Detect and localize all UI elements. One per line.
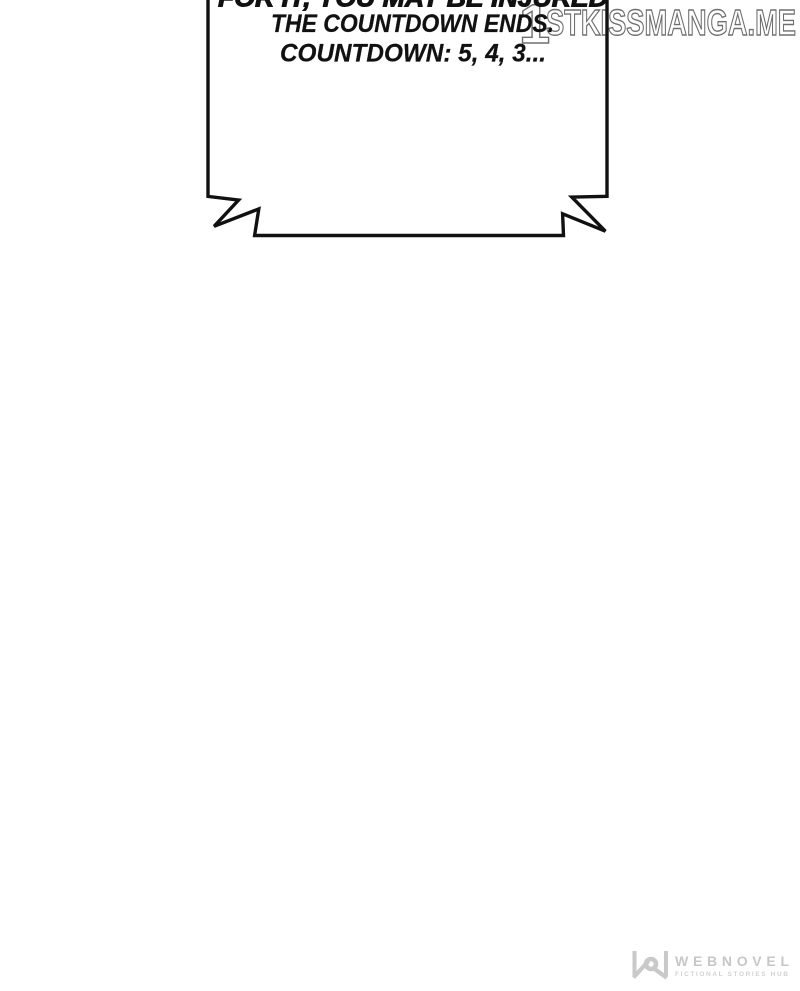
svg-text:COUNTDOWN: 5, 4, 3...: COUNTDOWN: 5, 4, 3... bbox=[280, 40, 546, 68]
svg-text:THE COUNTDOWN ENDS.: THE COUNTDOWN ENDS. bbox=[271, 10, 554, 38]
svg-text:FICTIONAL STORIES HUB: FICTIONAL STORIES HUB bbox=[675, 971, 788, 978]
svg-text:WEBNOVEL: WEBNOVEL bbox=[675, 953, 789, 969]
